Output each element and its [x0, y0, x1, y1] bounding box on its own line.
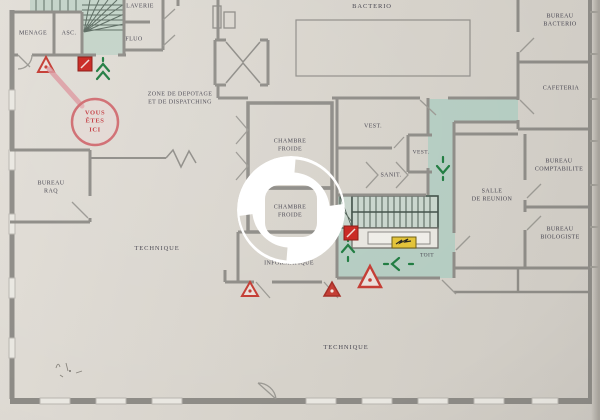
watermark-logo	[0, 0, 600, 420]
floor-plan-photo: MENAGE ASC. LAVERIE FLUO BACTERIO BUREAU…	[0, 0, 600, 420]
